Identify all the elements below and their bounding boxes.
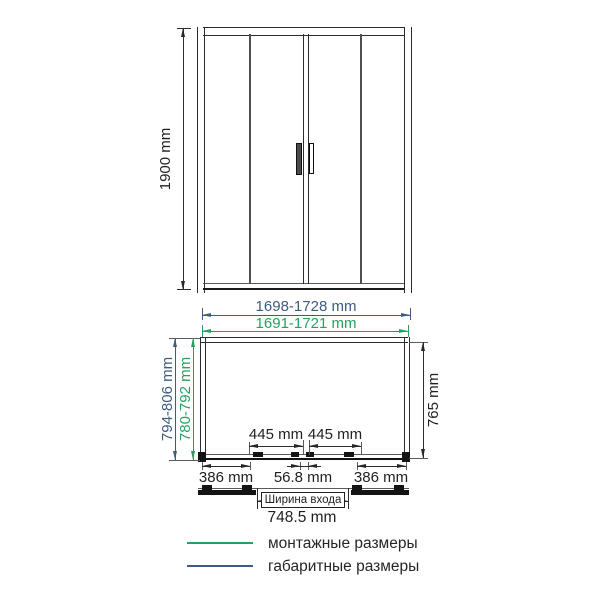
fixed-right-arrow-r <box>397 464 406 468</box>
fixed-right-label: 386 mm <box>341 470 421 486</box>
overall-width-arrow-left <box>202 313 211 317</box>
door-left-arrow-r <box>294 444 303 448</box>
roller-icon <box>344 452 354 457</box>
side-depth-label: 765 mm <box>426 360 442 440</box>
overall-width-label: 1698-1728 mm <box>226 299 386 315</box>
mounting-width-arrow-right <box>399 329 408 333</box>
mounting-depth-label: 780-792 mm <box>178 344 194 454</box>
open-door-right <box>351 490 409 495</box>
side-depth-arrow-bottom <box>421 449 425 458</box>
height-label: 1900 mm <box>158 114 174 204</box>
door-right-label: 445 mm <box>295 427 375 443</box>
overlap-arrow-l <box>291 464 300 468</box>
roller-icon <box>394 485 404 490</box>
plan-back-wall <box>200 337 408 343</box>
door-dim-ext <box>303 440 304 455</box>
bottom-rail <box>203 288 404 290</box>
legend-mounting-line <box>187 542 253 544</box>
fixed-panel-mullion-right <box>360 34 362 284</box>
height-arrow-bottom <box>181 281 185 290</box>
door-handle-left <box>296 143 302 175</box>
fixed-left-label: 386 mm <box>186 470 266 486</box>
overall-depth-label: 794-806 mm <box>160 344 176 454</box>
side-depth-arrow-top <box>421 342 425 351</box>
roller-icon <box>352 485 362 490</box>
plan-left-end-cap <box>198 452 206 462</box>
door-handle-right <box>309 143 314 174</box>
legend-mounting-label: монтажные размеры <box>268 535 418 553</box>
open-door-left <box>198 490 256 495</box>
roller-icon <box>306 452 314 457</box>
overlap-arrow-r <box>308 464 317 468</box>
top-rail <box>203 27 404 36</box>
entrance-label-box: Ширина входа <box>261 492 345 508</box>
fixed-left-arrow-r <box>241 464 250 468</box>
side-depth-ext-bottom <box>409 458 428 459</box>
overlap-label: 56.8 mm <box>263 470 343 486</box>
side-depth-ext-top <box>409 342 428 343</box>
fixed-left-arrow-l <box>202 464 211 468</box>
plan-track-inner-line <box>203 454 405 455</box>
plan-left-wall <box>200 337 206 461</box>
height-arrow-top <box>181 28 185 37</box>
door-left-arrow-l <box>249 444 258 448</box>
plan-right-wall <box>404 337 410 461</box>
bottom-rail-inner-line <box>203 283 404 284</box>
left-wall-profile <box>197 27 205 293</box>
fixed-right-arrow-l <box>357 464 366 468</box>
door-right-arrow-r <box>352 444 361 448</box>
entrance-label: Ширина входа <box>265 494 342 506</box>
roller-icon <box>253 452 263 457</box>
door-stile-left <box>303 34 304 284</box>
plan-track-front <box>200 458 408 460</box>
door-dim-ext <box>309 440 310 455</box>
height-dim-line <box>183 28 184 290</box>
mounting-width-label: 1691-1721 mm <box>226 316 386 332</box>
legend-overall-line <box>187 565 253 567</box>
mounting-width-arrow-left <box>202 329 211 333</box>
right-wall-profile <box>404 27 412 293</box>
fixed-panel-mullion-left <box>249 34 251 284</box>
mounting-width-dim-line <box>202 331 408 332</box>
roller-icon <box>202 485 212 490</box>
open-door-track-line <box>198 488 409 489</box>
roller-icon <box>291 452 299 457</box>
shower-enclosure-dimension-drawing: 1900 mm 1698-1728 mm 1691-1721 mm <box>0 0 600 600</box>
side-depth-dim-line <box>423 342 424 458</box>
legend-overall-label: габаритные размеры <box>268 558 419 576</box>
door-right-arrow-l <box>309 444 318 448</box>
entrance-value: 748.5 mm <box>252 510 352 526</box>
overall-width-arrow-right <box>401 313 410 317</box>
roller-icon <box>242 485 252 490</box>
